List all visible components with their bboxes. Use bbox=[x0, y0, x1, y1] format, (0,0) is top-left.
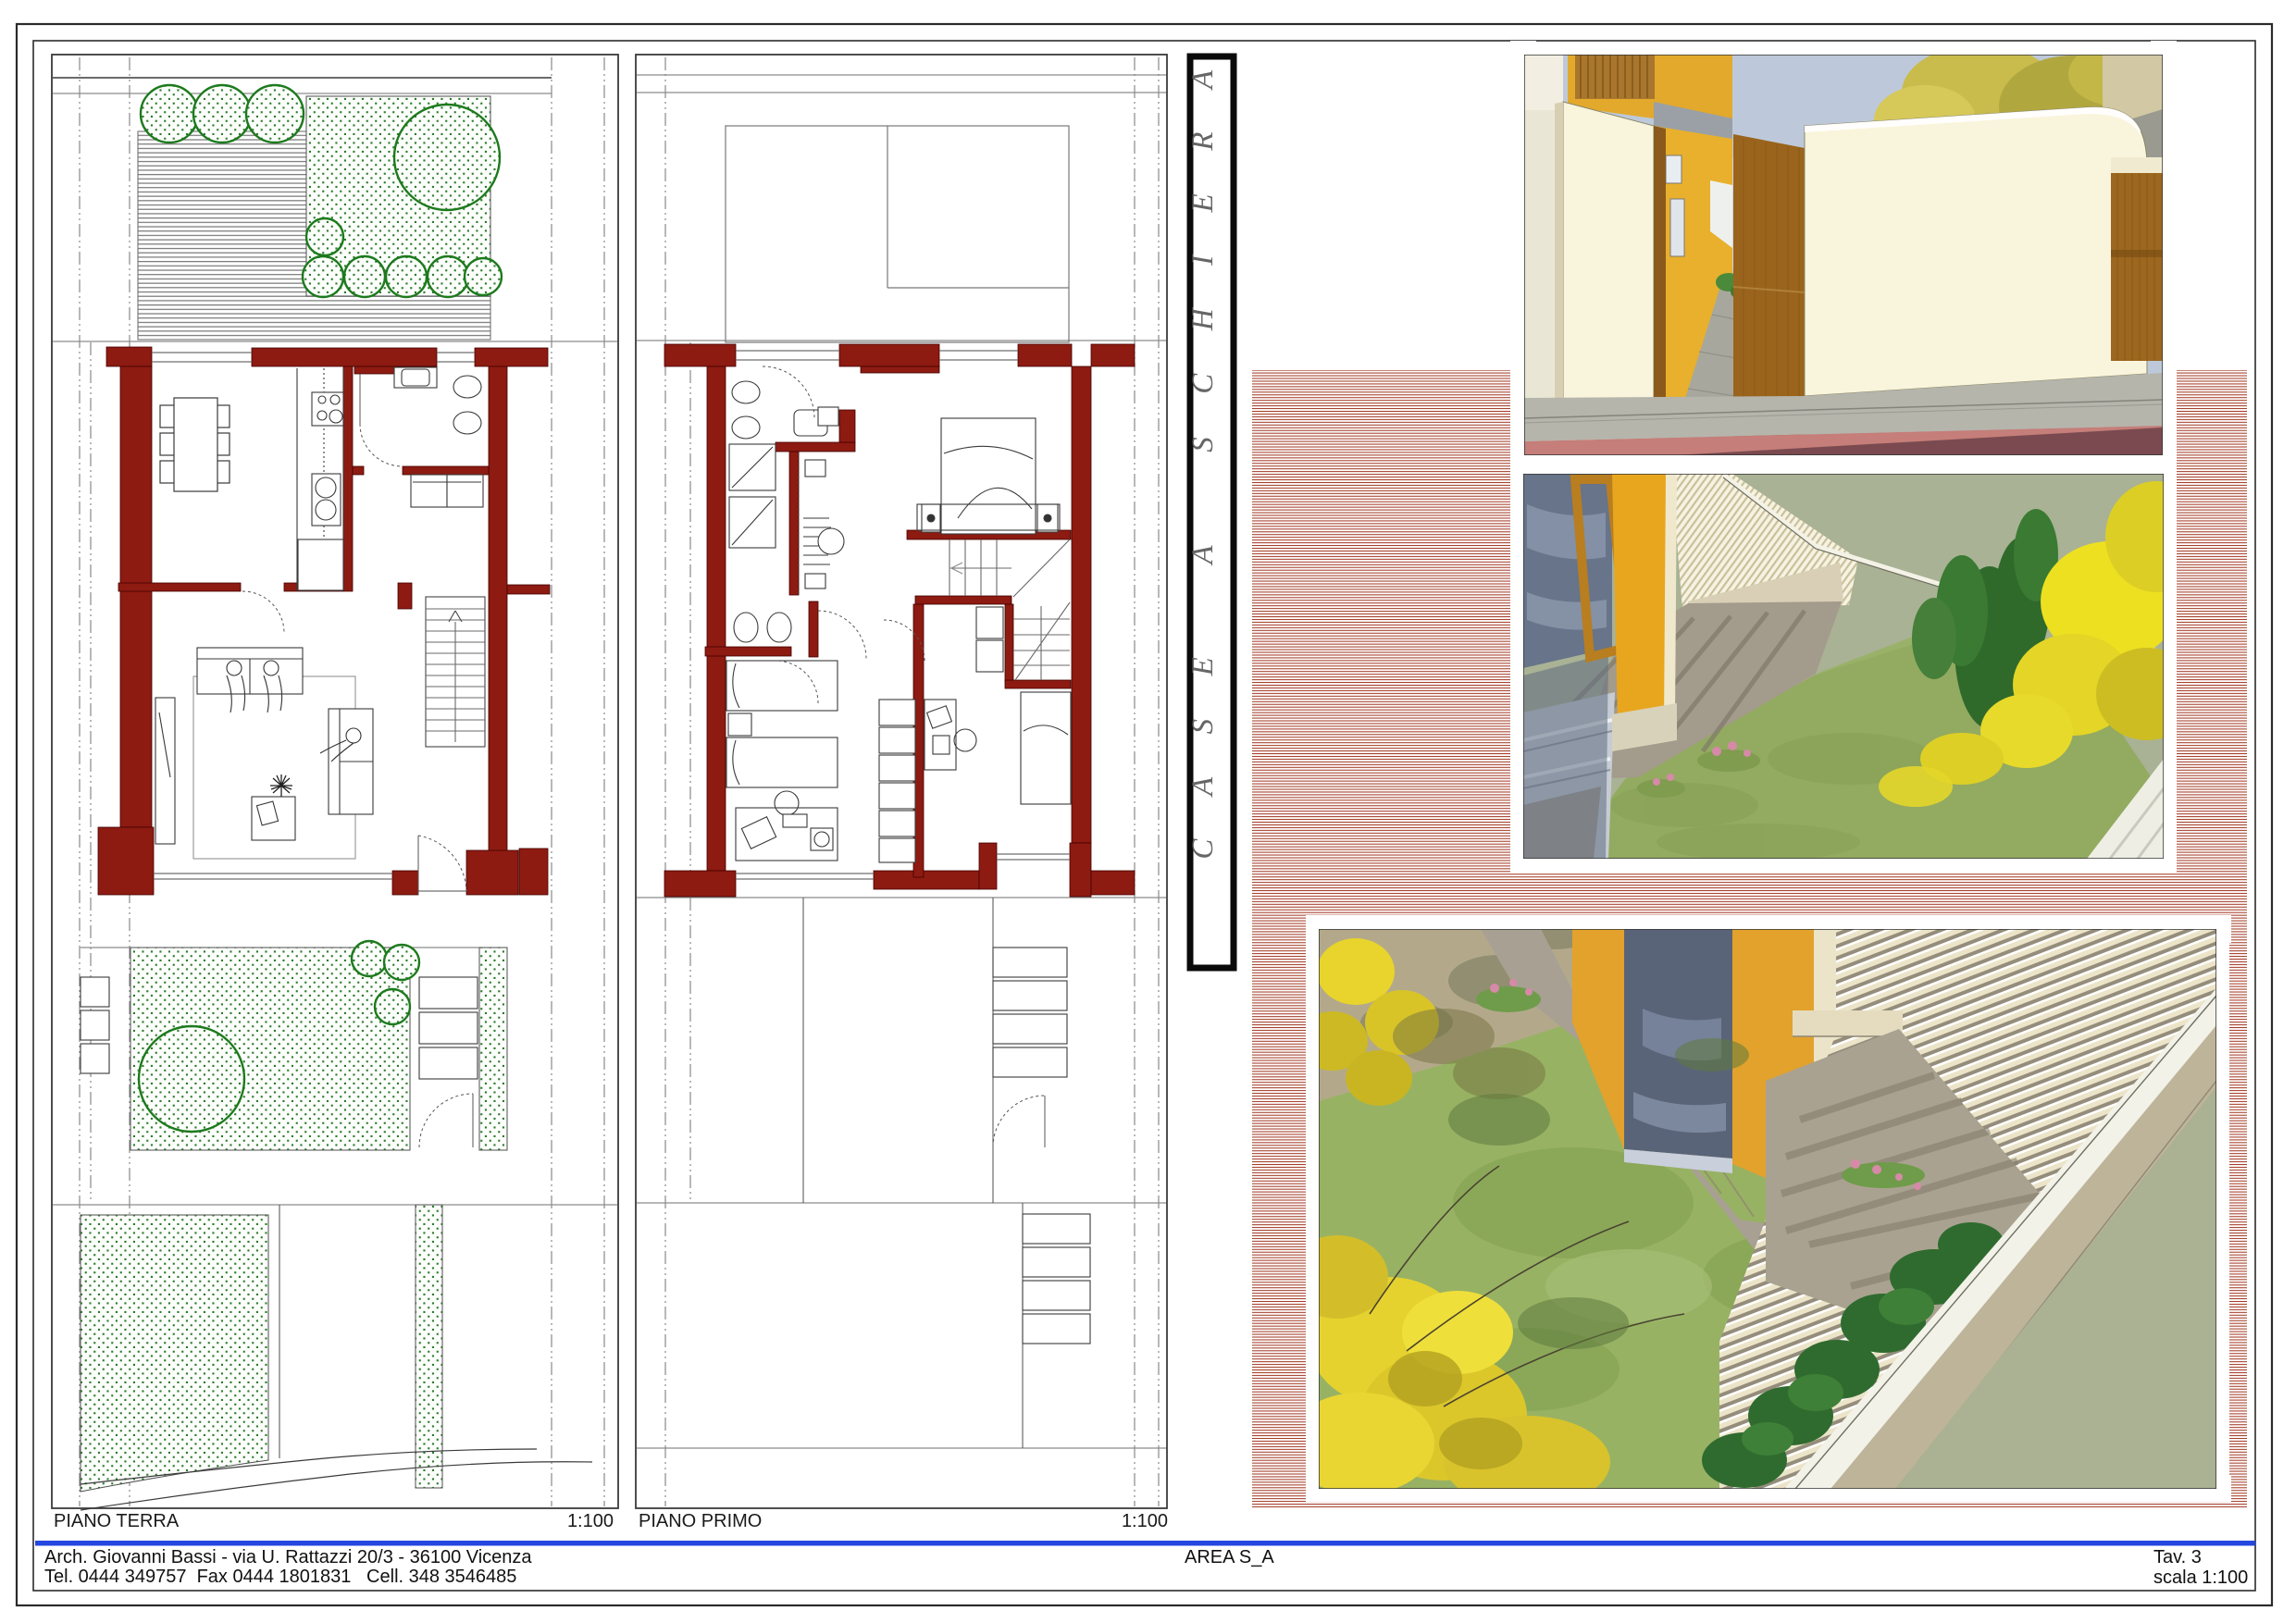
svg-text:Arch. Giovanni Bassi - via U.: Arch. Giovanni Bassi - via U. Rattazzi 2… bbox=[44, 1547, 532, 1567]
svg-text:scala 1:100: scala 1:100 bbox=[2153, 1567, 2248, 1588]
svg-text:Tav. 3: Tav. 3 bbox=[2153, 1547, 2202, 1567]
svg-text:CASE A SCHIERA: CASE A SCHIERA bbox=[1186, 27, 1220, 859]
svg-text:1:100: 1:100 bbox=[1122, 1511, 1168, 1531]
svg-text:1:100: 1:100 bbox=[567, 1511, 614, 1531]
svg-text:PIANO PRIMO: PIANO PRIMO bbox=[639, 1511, 762, 1531]
svg-text:AREA S_A: AREA S_A bbox=[1185, 1547, 1274, 1567]
svg-text:PIANO TERRA: PIANO TERRA bbox=[54, 1511, 180, 1531]
svg-text:Tel. 0444 349757 Fax 0444 180: Tel. 0444 349757 Fax 0444 1801831 Cell. … bbox=[44, 1567, 516, 1587]
